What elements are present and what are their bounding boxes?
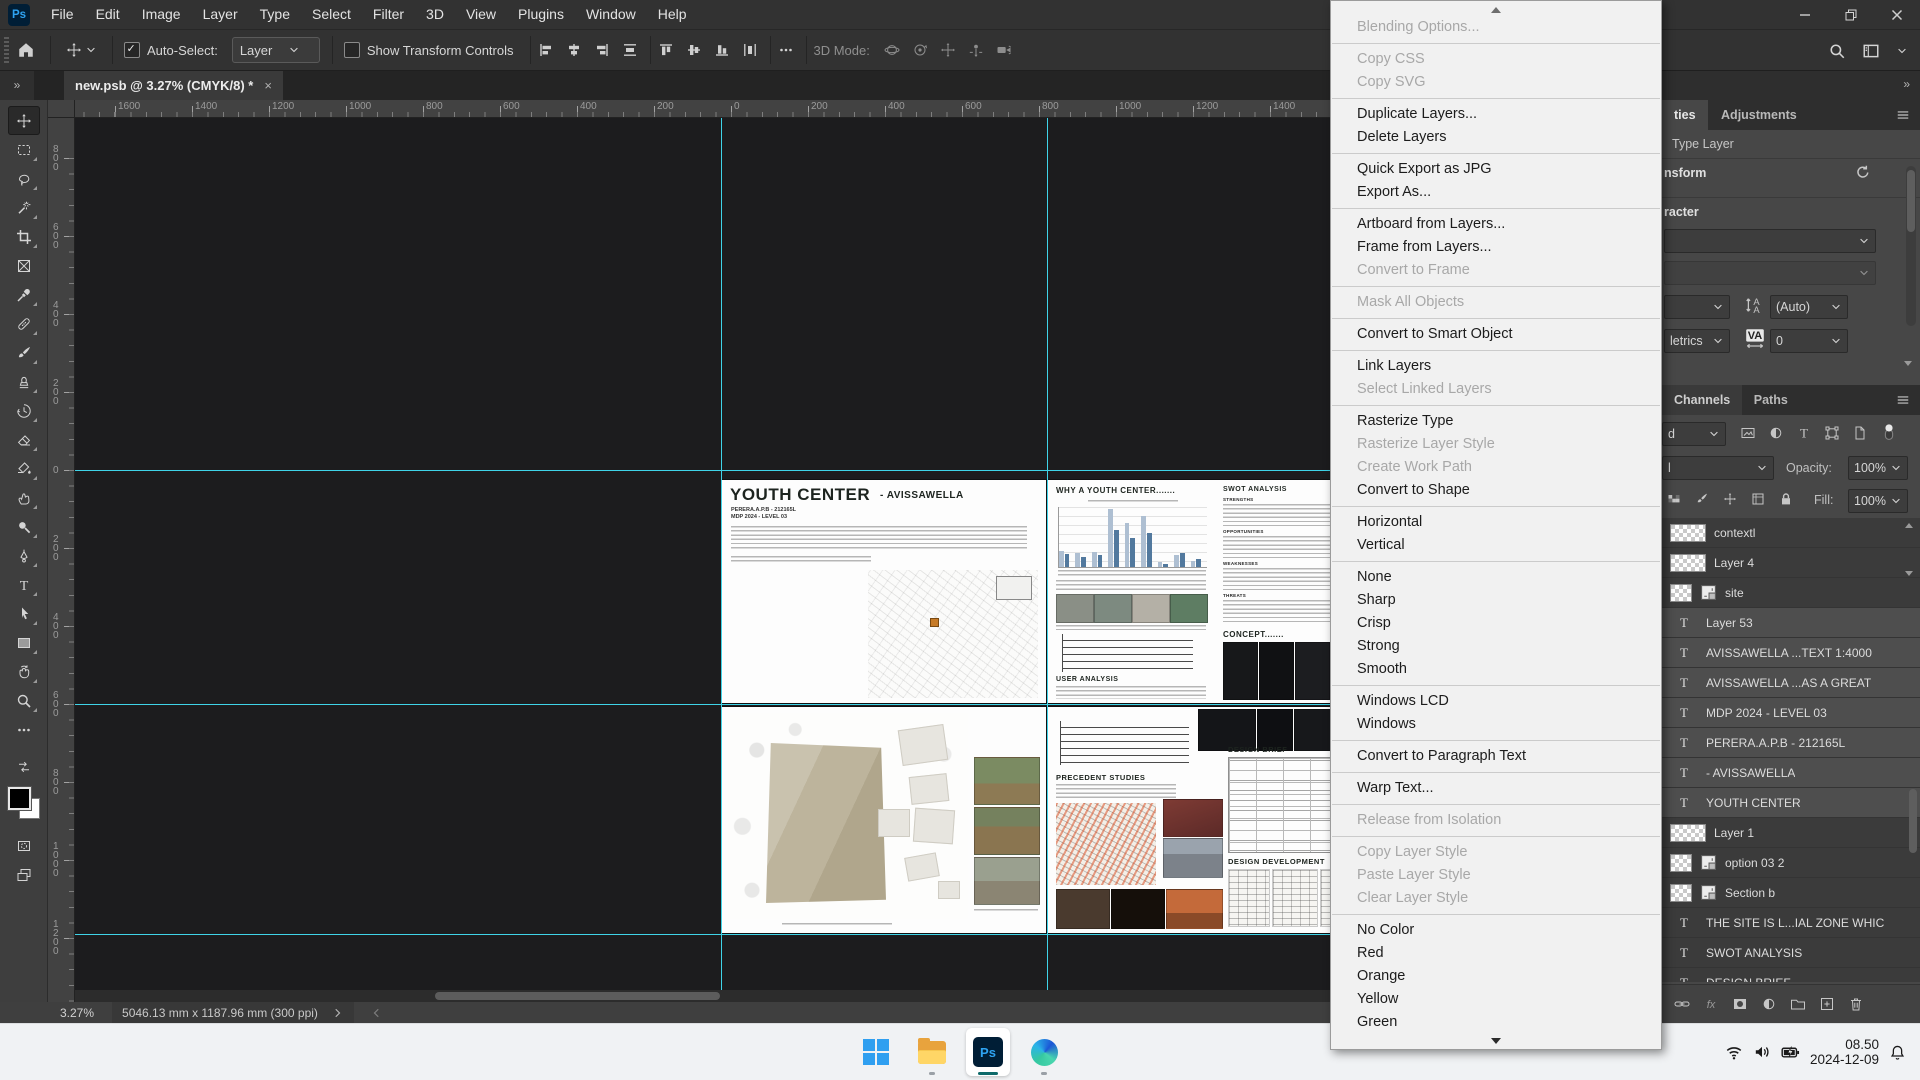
rectangle-icon xyxy=(16,635,32,651)
zoom-tool[interactable] xyxy=(8,686,40,715)
layer-row[interactable]: TYOUTH CENTER xyxy=(1662,788,1920,818)
fill-label: Fill: xyxy=(1814,493,1833,507)
3d-camera-icon[interactable] xyxy=(996,42,1012,58)
menu-layer[interactable]: Layer xyxy=(192,0,249,29)
taskbar-clock[interactable]: 08.50 2024-12-09 xyxy=(1810,1037,1879,1067)
layer-thumbnail xyxy=(1670,884,1692,902)
distribute-horizontal-button[interactable] xyxy=(742,42,758,58)
type-layer-thumbnail-icon: T xyxy=(1670,795,1698,811)
context-menu-item[interactable]: Convert to Shape xyxy=(1331,479,1661,502)
history-brush-tool[interactable] xyxy=(8,396,40,425)
context-menu-item: Select Linked Layers xyxy=(1331,378,1661,401)
3d-roll-icon[interactable] xyxy=(912,42,928,58)
layer-filter-kind-dropdown[interactable]: d xyxy=(1662,422,1726,446)
type-layer-thumbnail-icon: T xyxy=(1670,675,1698,691)
crop-icon xyxy=(16,229,32,245)
brush-tool[interactable] xyxy=(8,338,40,367)
context-menu-item[interactable]: None xyxy=(1331,566,1661,589)
ruler-label: 6 0 0 xyxy=(53,691,59,718)
context-menu-separator xyxy=(1332,506,1660,507)
site-photo xyxy=(974,857,1040,905)
3d-slide-icon[interactable] xyxy=(968,42,984,58)
lock-all-icon[interactable] xyxy=(1778,491,1794,507)
more-tool[interactable] xyxy=(8,715,40,744)
chart-bar xyxy=(1059,551,1064,567)
layer-row[interactable]: Layer 1 xyxy=(1662,818,1920,848)
color-swatches[interactable] xyxy=(6,785,42,821)
site-photo xyxy=(974,807,1040,855)
align-bottom-button[interactable] xyxy=(714,42,730,58)
checkbox-unchecked-icon xyxy=(344,42,360,58)
window-controls xyxy=(1782,0,1920,29)
chart-bar xyxy=(1092,552,1097,567)
brush-icon xyxy=(16,345,32,361)
rotate-view-tool[interactable] xyxy=(8,657,40,686)
layer-row[interactable]: TLayer 53 xyxy=(1662,608,1920,638)
design-development-heading: DESIGN DEVELOPMENT xyxy=(1228,857,1325,866)
context-menu-separator xyxy=(1332,405,1660,406)
swap-mini-icon xyxy=(16,759,32,775)
eraser-tool[interactable] xyxy=(8,425,40,454)
move-tool-icon xyxy=(66,42,82,58)
menu-select[interactable]: Select xyxy=(301,0,362,29)
clone-stamp-icon xyxy=(16,374,32,390)
context-menu-item: Rasterize Layer Style xyxy=(1331,433,1661,456)
filter-pixel-layers-icon[interactable] xyxy=(1740,425,1756,441)
panel-collapse-button[interactable]: » xyxy=(1903,77,1910,91)
ruler-label: 4 0 0 xyxy=(53,301,59,328)
healing-tool[interactable] xyxy=(8,309,40,338)
properties-tab-bar: ties Adjustments xyxy=(1662,100,1920,130)
ruler-label: 400 xyxy=(580,101,597,112)
context-menu-separator xyxy=(1332,740,1660,741)
restore-button[interactable] xyxy=(1828,0,1874,29)
home-button[interactable] xyxy=(9,35,43,65)
layer-name: YOUTH CENTER xyxy=(1706,796,1801,810)
concept-photo xyxy=(1295,642,1330,700)
layers-scrollbar[interactable] xyxy=(1908,521,1918,979)
poster-top-left: YOUTH CENTER - AVISSAWELLA PERERA.A.P.B … xyxy=(722,480,1046,703)
context-menu-item[interactable]: Rasterize Type xyxy=(1331,410,1661,433)
photoshop-logo-icon: Ps xyxy=(8,4,30,26)
context-menu-item[interactable]: Warp Text... xyxy=(1331,777,1661,800)
tab-adjustments[interactable]: Adjustments xyxy=(1721,108,1797,122)
scroll-down-icon[interactable] xyxy=(1904,361,1912,366)
filter-smart-objects-icon[interactable] xyxy=(1852,425,1868,441)
concept-heading: CONCEPT....... xyxy=(1223,630,1284,639)
smart-object-badge-icon xyxy=(1700,584,1717,601)
zoom-icon xyxy=(16,693,32,709)
chevron-down-icon xyxy=(1858,235,1870,247)
smudge-icon xyxy=(16,490,32,506)
context-menu-separator xyxy=(1332,914,1660,915)
leading-dropdown[interactable]: (Auto) xyxy=(1770,295,1848,319)
ruler-label: 1400 xyxy=(1273,101,1295,112)
file-explorer-button[interactable] xyxy=(910,1028,954,1076)
context-menu-item[interactable]: Orange xyxy=(1331,965,1661,988)
context-menu-separator xyxy=(1332,772,1660,773)
menu-help[interactable]: Help xyxy=(647,0,698,29)
edge-button[interactable] xyxy=(1022,1028,1066,1076)
layer-name: site xyxy=(1725,586,1744,600)
context-menu-item[interactable]: Sharp xyxy=(1331,589,1661,612)
context-menu-item[interactable]: Quick Export as JPG xyxy=(1331,158,1661,181)
menu-items: FileEditImageLayerTypeSelectFilter3DView… xyxy=(40,0,698,29)
align-vertical-centers-button[interactable] xyxy=(686,42,702,58)
chart-bar xyxy=(1141,516,1146,567)
swap-mini-tool[interactable] xyxy=(8,752,40,781)
ruler-label: 1600 xyxy=(118,101,140,112)
chevron-down-icon xyxy=(1712,301,1724,313)
photoshop-taskbar-button[interactable]: Ps xyxy=(966,1028,1010,1076)
tracking-icon: VA xyxy=(1744,327,1766,349)
healing-icon xyxy=(16,316,32,332)
poster-photo xyxy=(1056,594,1094,623)
svg-text:T: T xyxy=(19,579,28,593)
context-menu-item[interactable]: Delete Layers xyxy=(1331,126,1661,149)
object-selection-tool[interactable] xyxy=(8,193,40,222)
context-menu-item[interactable]: Convert to Paragraph Text xyxy=(1331,745,1661,768)
tab-paths[interactable]: Paths xyxy=(1754,393,1788,407)
filter-toggle-icon[interactable] xyxy=(1880,423,1898,441)
context-menu-item[interactable]: Link Layers xyxy=(1331,355,1661,378)
more-align-options-button[interactable] xyxy=(778,42,794,58)
reset-transform-icon[interactable] xyxy=(1854,164,1871,181)
filter-shape-layers-icon[interactable] xyxy=(1824,425,1840,441)
distribute-vertical-button[interactable] xyxy=(622,42,638,58)
filter-type-layers-icon[interactable]: T xyxy=(1796,425,1812,441)
tracking-dropdown[interactable]: 0 xyxy=(1770,329,1848,353)
context-menu-item[interactable]: Strong xyxy=(1331,635,1661,658)
font-style-dropdown[interactable] xyxy=(1664,261,1876,285)
context-menu-item[interactable]: Horizontal xyxy=(1331,511,1661,534)
tab-properties[interactable]: ties xyxy=(1662,100,1708,130)
wifi-icon[interactable] xyxy=(1725,1043,1743,1061)
context-menu-item[interactable]: Windows xyxy=(1331,713,1661,736)
show-transform-checkbox[interactable]: Show Transform Controls xyxy=(344,42,514,58)
type-tool[interactable]: T xyxy=(8,570,40,599)
add-mask-icon[interactable] xyxy=(1732,996,1748,1012)
concept-photo xyxy=(1223,642,1258,700)
context-menu-separator xyxy=(1332,561,1660,562)
context-menu-separator xyxy=(1332,43,1660,44)
system-tray: 08.50 2024-12-09 xyxy=(1725,1026,1906,1078)
eraser-icon xyxy=(16,432,32,448)
quick-mask-tool[interactable] xyxy=(8,831,40,860)
context-menu-item[interactable]: No Color xyxy=(1331,919,1661,942)
lock-pixels-icon[interactable] xyxy=(1694,491,1710,507)
screen-mode-tool[interactable] xyxy=(8,860,40,889)
panel-menu-icon[interactable] xyxy=(1896,393,1910,407)
layer-name: AVISSAWELLA ...AS A GREAT xyxy=(1706,676,1871,690)
search-icon[interactable] xyxy=(1828,42,1846,60)
scroll-up-icon[interactable] xyxy=(1905,523,1913,528)
chevron-down-icon xyxy=(288,44,300,56)
swot-heading: SWOT ANALYSIS xyxy=(1223,486,1287,493)
chevron-down-icon[interactable] xyxy=(1896,45,1908,57)
menu-edit[interactable]: Edit xyxy=(85,0,131,29)
layer-row[interactable]: TTHE SITE IS L...IAL ZONE WHIC xyxy=(1662,908,1920,938)
ruler-label: 600 xyxy=(503,101,520,112)
lasso-tool[interactable] xyxy=(8,164,40,193)
ruler-label: 0 xyxy=(53,466,59,475)
dodge-icon xyxy=(16,519,32,535)
lock-artboard-icon[interactable] xyxy=(1750,491,1766,507)
layer-row[interactable]: contextl xyxy=(1662,518,1920,548)
ruler-corner xyxy=(48,100,75,118)
new-group-icon[interactable] xyxy=(1790,996,1806,1012)
poster-course: MDP 2024 - LEVEL 03 xyxy=(731,514,787,520)
layer-row[interactable]: Layer 4 xyxy=(1662,548,1920,578)
new-adjustment-layer-icon[interactable] xyxy=(1761,996,1777,1012)
clock-date: 2024-12-09 xyxy=(1810,1052,1879,1067)
close-icon xyxy=(1889,7,1905,23)
context-menu-item[interactable]: Smooth xyxy=(1331,658,1661,681)
layer-style-icon[interactable]: fx xyxy=(1703,996,1719,1012)
ruler-label: 800 xyxy=(426,101,443,112)
photoshop-icon: Ps xyxy=(973,1037,1003,1067)
tool-bar: T xyxy=(0,100,48,1002)
layer-name: Layer 1 xyxy=(1714,826,1754,840)
pen-icon xyxy=(16,548,32,564)
crop-tool[interactable] xyxy=(8,222,40,251)
context-menu-separator xyxy=(1332,318,1660,319)
layer-thumbnail xyxy=(1670,854,1692,872)
menu-plugins[interactable]: Plugins xyxy=(507,0,575,29)
menu-file[interactable]: File xyxy=(40,0,85,29)
menu-filter[interactable]: Filter xyxy=(362,0,415,29)
screen-mode-icon xyxy=(16,867,32,883)
restore-icon xyxy=(1843,7,1859,23)
svg-text:A: A xyxy=(1753,305,1760,315)
lock-transparency-icon[interactable] xyxy=(1666,491,1682,507)
layer-row[interactable]: TMDP 2024 - LEVEL 03 xyxy=(1662,698,1920,728)
pen-tool[interactable] xyxy=(8,541,40,570)
context-menu-item[interactable]: Convert to Smart Object xyxy=(1331,323,1661,346)
dodge-tool[interactable] xyxy=(8,512,40,541)
context-menu-item[interactable]: Red xyxy=(1331,942,1661,965)
context-menu-item[interactable]: Frame from Layers... xyxy=(1331,236,1661,259)
path-select-icon xyxy=(16,606,32,622)
why-youth-center-heading: WHY A YOUTH CENTER....... xyxy=(1056,486,1175,495)
layer-row[interactable]: TPERERA.A.P.B - 212165L xyxy=(1662,728,1920,758)
minimize-icon xyxy=(1797,7,1813,23)
layer-name: contextl xyxy=(1714,526,1755,540)
context-menu-scroll-down[interactable] xyxy=(1331,1034,1661,1047)
leading-icon: AA xyxy=(1744,295,1764,315)
tool-preset-button[interactable] xyxy=(58,35,105,65)
chart-bar xyxy=(1125,523,1130,567)
filter-adjustment-layers-icon[interactable] xyxy=(1768,425,1784,441)
3d-pan-icon[interactable] xyxy=(940,42,956,58)
gradient-bucket-tool[interactable] xyxy=(8,454,40,483)
lasso-icon xyxy=(16,171,32,187)
close-button[interactable] xyxy=(1874,0,1920,29)
align-horizontal-centers-button[interactable] xyxy=(566,42,582,58)
context-menu-item[interactable]: Vertical xyxy=(1331,534,1661,557)
context-menu-item: Paste Layer Style xyxy=(1331,864,1661,887)
chart-bar xyxy=(1108,509,1113,567)
chevron-down-icon xyxy=(1890,462,1902,474)
layer-row[interactable]: TAVISSAWELLA ...TEXT 1:4000 xyxy=(1662,638,1920,668)
ruler-label: 1200 xyxy=(1196,101,1218,112)
type-layer-thumbnail-icon: T xyxy=(1670,705,1698,721)
poster-author: PERERA.A.P.B - 212165L xyxy=(731,507,796,513)
rectangle-tool[interactable] xyxy=(8,628,40,657)
context-menu-item: Mask All Objects xyxy=(1331,291,1661,314)
layer-row[interactable]: site xyxy=(1662,578,1920,608)
panel-collapse-button[interactable]: » xyxy=(0,71,34,100)
gradient-bucket-icon xyxy=(16,461,32,477)
smudge-tool[interactable] xyxy=(8,483,40,512)
align-left-button[interactable] xyxy=(538,42,554,58)
align-right-button[interactable] xyxy=(594,42,610,58)
poster-top-right: WHY A YOUTH CENTER....... USER ANALYSIS … xyxy=(1048,480,1372,703)
chevron-down-icon xyxy=(1708,428,1720,440)
volume-icon[interactable] xyxy=(1753,1043,1771,1061)
concept-photo xyxy=(1259,642,1294,700)
photoshop-window: Ps FileEditImageLayerTypeSelectFilter3DV… xyxy=(0,0,1920,1080)
font-family-dropdown[interactable] xyxy=(1664,229,1876,253)
properties-scrollbar[interactable] xyxy=(1906,166,1916,326)
context-menu-item[interactable]: Duplicate Layers... xyxy=(1331,103,1661,126)
context-menu-item[interactable]: Crisp xyxy=(1331,612,1661,635)
marquee-icon xyxy=(16,142,32,158)
layer-row[interactable]: T- AVISSAWELLA xyxy=(1662,758,1920,788)
type-icon: T xyxy=(16,577,32,593)
chevron-right-icon[interactable] xyxy=(332,1007,344,1019)
panel-menu-icon[interactable] xyxy=(1896,108,1910,122)
ruler-label: 1 0 0 0 xyxy=(53,842,59,878)
delete-layer-icon[interactable] xyxy=(1848,996,1864,1012)
context-menu-item[interactable]: Yellow xyxy=(1331,988,1661,1011)
frame-tool[interactable] xyxy=(8,251,40,280)
layer-row[interactable]: TDESIGN BRIEF xyxy=(1662,968,1920,982)
tab-close-button[interactable]: × xyxy=(264,78,272,93)
context-menu-item[interactable]: Windows LCD xyxy=(1331,690,1661,713)
layer-name: THE SITE IS L...IAL ZONE WHIC xyxy=(1706,916,1884,930)
new-layer-icon[interactable] xyxy=(1819,996,1835,1012)
chart-bar xyxy=(1180,553,1185,567)
path-select-tool[interactable] xyxy=(8,599,40,628)
layer-thumbnail xyxy=(1670,824,1706,842)
site-plan xyxy=(728,713,968,919)
auto-select-checkbox[interactable]: Auto-Select: xyxy=(124,42,218,58)
smart-object-badge-icon xyxy=(1700,884,1717,901)
link-layers-icon[interactable] xyxy=(1674,996,1690,1012)
notification-bell-icon[interactable] xyxy=(1889,1044,1906,1061)
context-menu-item[interactable]: Green xyxy=(1331,1011,1661,1034)
context-menu-item[interactable]: Artboard from Layers... xyxy=(1331,213,1661,236)
layer-row[interactable]: TSWOT ANALYSIS xyxy=(1662,938,1920,968)
move-tool[interactable] xyxy=(8,106,40,135)
layer-row[interactable]: Section b xyxy=(1662,878,1920,908)
chart-bar xyxy=(1147,533,1152,567)
marquee-tool[interactable] xyxy=(8,135,40,164)
menu-window[interactable]: Window xyxy=(575,0,647,29)
start-button[interactable] xyxy=(854,1028,898,1076)
quick-mask-icon xyxy=(16,838,32,854)
battery-icon[interactable] xyxy=(1781,1043,1800,1062)
3d-orbit-icon[interactable] xyxy=(884,42,900,58)
foreground-color-swatch[interactable] xyxy=(8,787,31,810)
menu-type[interactable]: Type xyxy=(249,0,301,29)
align-top-button[interactable] xyxy=(658,42,674,58)
chevron-down-icon xyxy=(1712,335,1724,347)
design-brief-heading: DESIGN BRIEF xyxy=(1228,745,1287,754)
menu-image[interactable]: Image xyxy=(131,0,192,29)
chart-bar xyxy=(1191,561,1196,567)
menu-3d[interactable]: 3D xyxy=(415,0,455,29)
scroll-down-icon[interactable] xyxy=(1905,571,1913,576)
context-menu-scroll-up[interactable] xyxy=(1331,3,1661,16)
lock-position-icon[interactable] xyxy=(1722,491,1738,507)
object-selection-icon xyxy=(16,200,32,216)
tab-channels[interactable]: Channels xyxy=(1662,385,1742,415)
layer-name: Layer 53 xyxy=(1706,616,1753,630)
opacity-dropdown[interactable]: 100% xyxy=(1848,456,1908,480)
character-section-label: racter xyxy=(1664,205,1699,219)
opacity-label: Opacity: xyxy=(1786,461,1832,475)
document-tab[interactable]: new.psb @ 3.27% (CMYK/8) * × xyxy=(64,71,283,100)
menu-view[interactable]: View xyxy=(455,0,507,29)
layer-name: SWOT ANALYSIS xyxy=(1706,946,1802,960)
auto-select-target-dropdown[interactable]: Layer xyxy=(232,37,320,63)
precedent-heading: PRECEDENT STUDIES xyxy=(1056,773,1145,782)
type-layer-thumbnail-icon: T xyxy=(1670,945,1698,961)
chevron-down-icon xyxy=(1830,301,1842,313)
type-layer-thumbnail-icon: T xyxy=(1670,975,1698,983)
svg-text:VA: VA xyxy=(1748,330,1763,342)
scrollbar-thumb[interactable] xyxy=(435,992,720,1000)
type-layer-thumbnail-icon: T xyxy=(1670,915,1698,931)
context-menu-item[interactable]: Export As... xyxy=(1331,181,1661,204)
chart-bar xyxy=(1163,564,1168,567)
kerning-dropdown[interactable]: letrics xyxy=(1664,329,1730,353)
minimize-button[interactable] xyxy=(1782,0,1828,29)
eyedropper-tool[interactable] xyxy=(8,280,40,309)
move-icon xyxy=(16,113,32,129)
layer-row[interactable]: option 03 2 xyxy=(1662,848,1920,878)
panel-header-strip: » xyxy=(1662,71,1920,100)
layer-row[interactable]: TAVISSAWELLA ...AS A GREAT xyxy=(1662,668,1920,698)
workspace-switcher-icon[interactable] xyxy=(1862,42,1880,60)
more-icon xyxy=(16,722,32,738)
ruler-label: 1 2 0 0 xyxy=(53,920,59,956)
ruler-label: 200 xyxy=(657,101,674,112)
ruler-label: 1000 xyxy=(1119,101,1141,112)
history-brush-icon xyxy=(16,403,32,419)
blend-mode-dropdown[interactable]: l xyxy=(1662,456,1774,480)
context-menu-separator xyxy=(1332,685,1660,686)
home-icon xyxy=(17,41,35,59)
document-title: new.psb @ 3.27% (CMYK/8) * xyxy=(75,78,253,93)
clone-stamp-tool[interactable] xyxy=(8,367,40,396)
chevron-left-icon[interactable] xyxy=(370,1007,382,1019)
type-layer-thumbnail-icon: T xyxy=(1670,765,1698,781)
fill-dropdown[interactable]: 100% xyxy=(1848,489,1908,513)
show-transform-label: Show Transform Controls xyxy=(367,43,514,58)
auto-select-label: Auto-Select: xyxy=(147,43,218,58)
layers-list: contextlLayer 4siteTLayer 53TAVISSAWELLA… xyxy=(1662,518,1920,982)
chart-bar xyxy=(1065,554,1070,567)
ruler-label: 0 xyxy=(734,101,740,112)
chevron-down-icon xyxy=(1858,267,1870,279)
font-size-dropdown[interactable] xyxy=(1664,295,1730,319)
context-menu: Blending Options...Copy CSSCopy SVGDupli… xyxy=(1330,0,1662,1050)
context-menu-separator xyxy=(1332,98,1660,99)
zoom-level-field[interactable]: 3.27% xyxy=(60,1006,94,1020)
